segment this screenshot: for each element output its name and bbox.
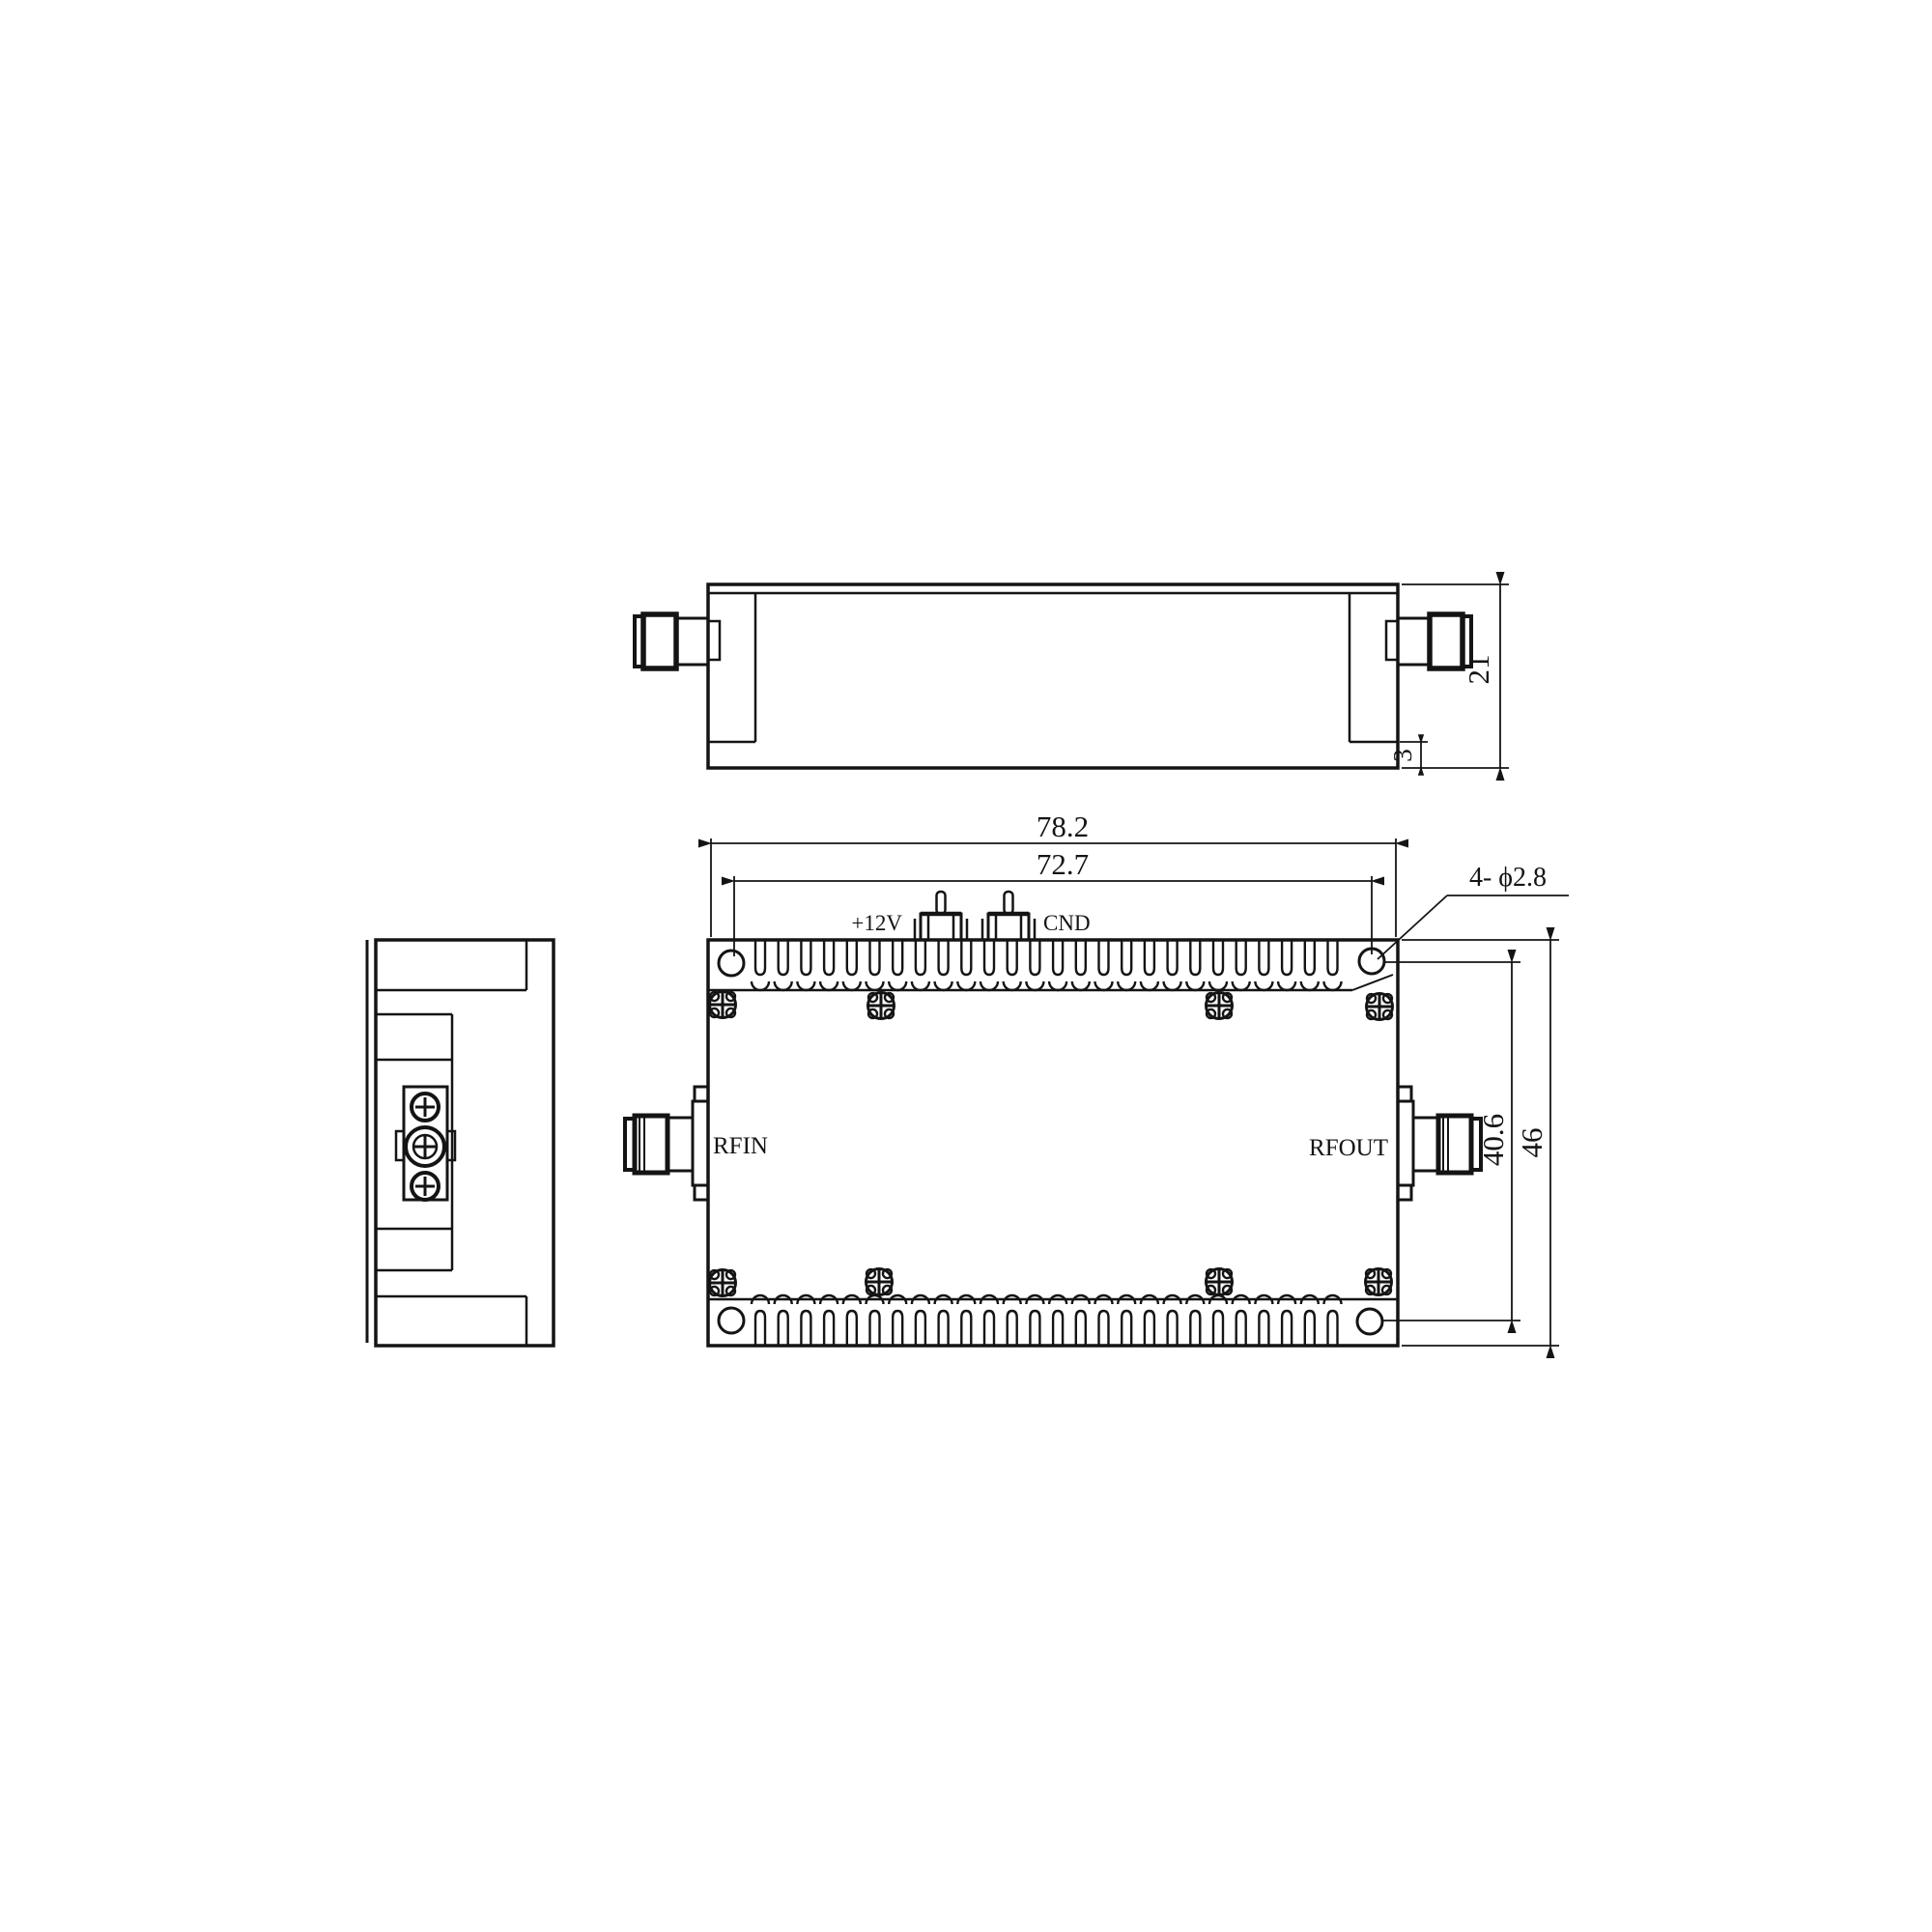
fin-slot (1168, 940, 1178, 975)
fin-scallop (1118, 981, 1135, 990)
fin-scallop (889, 981, 906, 990)
fin-slot (939, 940, 949, 975)
cover-screws (710, 992, 1393, 1296)
arrowhead (1395, 839, 1408, 848)
fin-slot (1122, 1311, 1131, 1346)
pin-cnd-label: CND (1043, 911, 1091, 935)
mounting-hole (719, 1308, 744, 1333)
fin-scallop (775, 981, 792, 990)
fin-scallop (867, 981, 884, 990)
arrowhead (1496, 572, 1505, 585)
fin-scallop (820, 981, 838, 990)
connector-cap (635, 616, 643, 667)
pin-base (988, 914, 1029, 940)
fin-slot (847, 940, 857, 975)
connector-flange (693, 1101, 708, 1185)
screw (1207, 993, 1233, 1019)
fin-scallop (912, 981, 929, 990)
dim-text-21: 21 (1462, 655, 1495, 685)
rfout-label: RFOUT (1309, 1135, 1388, 1161)
fin-slot (1168, 1311, 1178, 1346)
dim-text-78-2: 78.2 (1037, 810, 1089, 843)
fin-scallop (957, 981, 975, 990)
fin-slot (1213, 940, 1223, 975)
fin-slot (984, 940, 994, 975)
connector-flange (1398, 1101, 1413, 1185)
fin-scallop (1301, 981, 1319, 990)
connector-ring (1413, 1118, 1438, 1171)
fin-scallop (1209, 981, 1227, 990)
pin-base (921, 914, 961, 940)
hole-callout-leader (1378, 895, 1569, 959)
screw (1207, 1269, 1233, 1295)
fin-slot (1008, 1311, 1017, 1346)
dim-text-72-7: 72.7 (1037, 847, 1089, 881)
engineering-drawing: 78.2 72.7 21 3 46 40.6 4- ϕ2.8 RFIN RFOU… (0, 0, 1932, 1932)
fin-slot (1145, 1311, 1154, 1346)
fin-slot (1213, 1311, 1223, 1346)
dim-text-40-6: 40.6 (1476, 1114, 1510, 1166)
fin-slot (1145, 940, 1154, 975)
fin-slot (779, 940, 788, 975)
fin-slot (824, 940, 834, 975)
fin-slot (1328, 940, 1338, 975)
fin-slot (916, 940, 925, 975)
fin-slot (801, 940, 810, 975)
fin-slot (1099, 1311, 1109, 1346)
fin-scallop (1026, 981, 1043, 990)
connector-neck (676, 618, 708, 665)
dim-text-46: 46 (1515, 1128, 1548, 1158)
dim-text-3: 3 (1388, 749, 1417, 762)
fin-scallop (797, 981, 814, 990)
connector-nut (1430, 614, 1463, 668)
screw (1366, 1269, 1392, 1295)
fin-slot (1236, 1311, 1246, 1346)
screw (710, 1270, 736, 1296)
fin-slot (916, 1311, 925, 1346)
fin-scallop (1164, 981, 1181, 990)
side-view-left-connector (635, 614, 720, 668)
mounting-holes (719, 949, 1384, 1334)
fin-slot (1030, 940, 1039, 975)
feedthrough-pin (982, 892, 1035, 940)
fin-slot (1259, 940, 1268, 975)
fin-scallop (1186, 981, 1204, 990)
arrowhead (1508, 1320, 1517, 1333)
arrowhead (722, 877, 735, 886)
mounting-hole (1357, 1309, 1382, 1334)
fin-slot (1190, 940, 1200, 975)
mounting-hole (719, 951, 744, 976)
fin-scallop (1049, 981, 1066, 990)
fin-slot (1076, 1311, 1086, 1346)
arrowhead (698, 839, 712, 848)
fin-slot (755, 1311, 765, 1346)
end-view (367, 940, 554, 1346)
fin-slot (1122, 940, 1131, 975)
fin-scallop (1255, 981, 1272, 990)
fin-slot (1305, 940, 1315, 975)
fin-slot (1053, 940, 1063, 975)
connector-cap (625, 1119, 635, 1170)
fin-scallop (980, 981, 998, 990)
fin-slot (1008, 940, 1017, 975)
pin-stem (937, 892, 946, 914)
plan-view-outline (708, 940, 1398, 1346)
connector-bulkhead (708, 621, 720, 660)
fin-slot (870, 940, 880, 975)
arrowhead (1547, 1345, 1555, 1358)
feedthrough-pins (915, 892, 1035, 940)
plan-rfout-connector (1398, 1087, 1481, 1200)
fin-slot (779, 1311, 788, 1346)
fin-slot (1099, 940, 1109, 975)
fin-scallop (1004, 981, 1021, 990)
connector-nut (643, 614, 676, 668)
screw (867, 1269, 893, 1295)
fin-scallop (1072, 981, 1090, 990)
pin-stem (1005, 892, 1013, 914)
feedthrough-pin (915, 892, 967, 940)
rfin-label: RFIN (713, 1133, 768, 1159)
screw (710, 992, 736, 1018)
heatsink-fins-bottom (752, 1295, 1342, 1346)
plan-rfin-connector (625, 1087, 708, 1200)
connector-flange-tab-top (695, 1087, 708, 1101)
fin-slot (1236, 940, 1246, 975)
fin-slot (1282, 940, 1292, 975)
connector-ring (668, 1118, 693, 1171)
fin-scallop (935, 981, 952, 990)
fin-slot (1282, 1311, 1292, 1346)
arrowhead (1547, 927, 1555, 941)
end-view-connector (396, 1087, 455, 1200)
screw (1367, 994, 1393, 1020)
arrowhead (1496, 767, 1505, 781)
fin-slot (893, 940, 902, 975)
fin-slot (824, 1311, 834, 1346)
connector-flange-tab-bottom (1398, 1185, 1411, 1200)
fin-slot (1328, 1311, 1338, 1346)
fin-scallop (1095, 981, 1113, 990)
fin-scallop (843, 981, 861, 990)
annotations: 78.2 72.7 21 3 46 40.6 4- ϕ2.8 RFIN RFOU… (713, 655, 1548, 1167)
arrowhead (1371, 877, 1384, 886)
fin-slot (755, 940, 765, 975)
side-view (635, 584, 1509, 768)
fin-scallop (1141, 981, 1158, 990)
screw (868, 993, 895, 1019)
fin-scallop (1278, 981, 1295, 990)
fin-slot (961, 940, 971, 975)
plan-top-strip-chamfer (1352, 975, 1393, 990)
fin-slot (1190, 1311, 1200, 1346)
fin-slot (1076, 940, 1086, 975)
fin-slot (870, 1311, 880, 1346)
plan-view (625, 838, 1569, 1346)
fin-slot (847, 1311, 857, 1346)
dimension-arrowheads (698, 572, 1555, 1358)
side-view-outline (708, 584, 1398, 768)
fin-slot (893, 1311, 902, 1346)
connector-lug-left (396, 1131, 404, 1160)
hole-callout-text: 4- ϕ2.8 (1469, 863, 1547, 893)
fin-slot (1259, 1311, 1268, 1346)
connector-bulkhead (1386, 621, 1398, 660)
fin-scallop (1324, 981, 1342, 990)
fin-slot (1053, 1311, 1063, 1346)
fin-scallop (752, 981, 769, 990)
fin-slot (1305, 1311, 1315, 1346)
pin-12v-label: +12V (851, 911, 902, 935)
arrowhead (1508, 950, 1517, 963)
heatsink-fins-top (752, 940, 1342, 990)
fin-scallop (1233, 981, 1250, 990)
connector-flange-tab-top (1398, 1087, 1411, 1101)
side-view-right-connector (1386, 614, 1471, 668)
fin-slot (1030, 1311, 1039, 1346)
fin-slot (984, 1311, 994, 1346)
fin-slot (961, 1311, 971, 1346)
fin-slot (801, 1311, 810, 1346)
fin-slot (939, 1311, 949, 1346)
connector-flange-tab-bottom (695, 1185, 708, 1200)
connector-neck (1398, 618, 1430, 665)
